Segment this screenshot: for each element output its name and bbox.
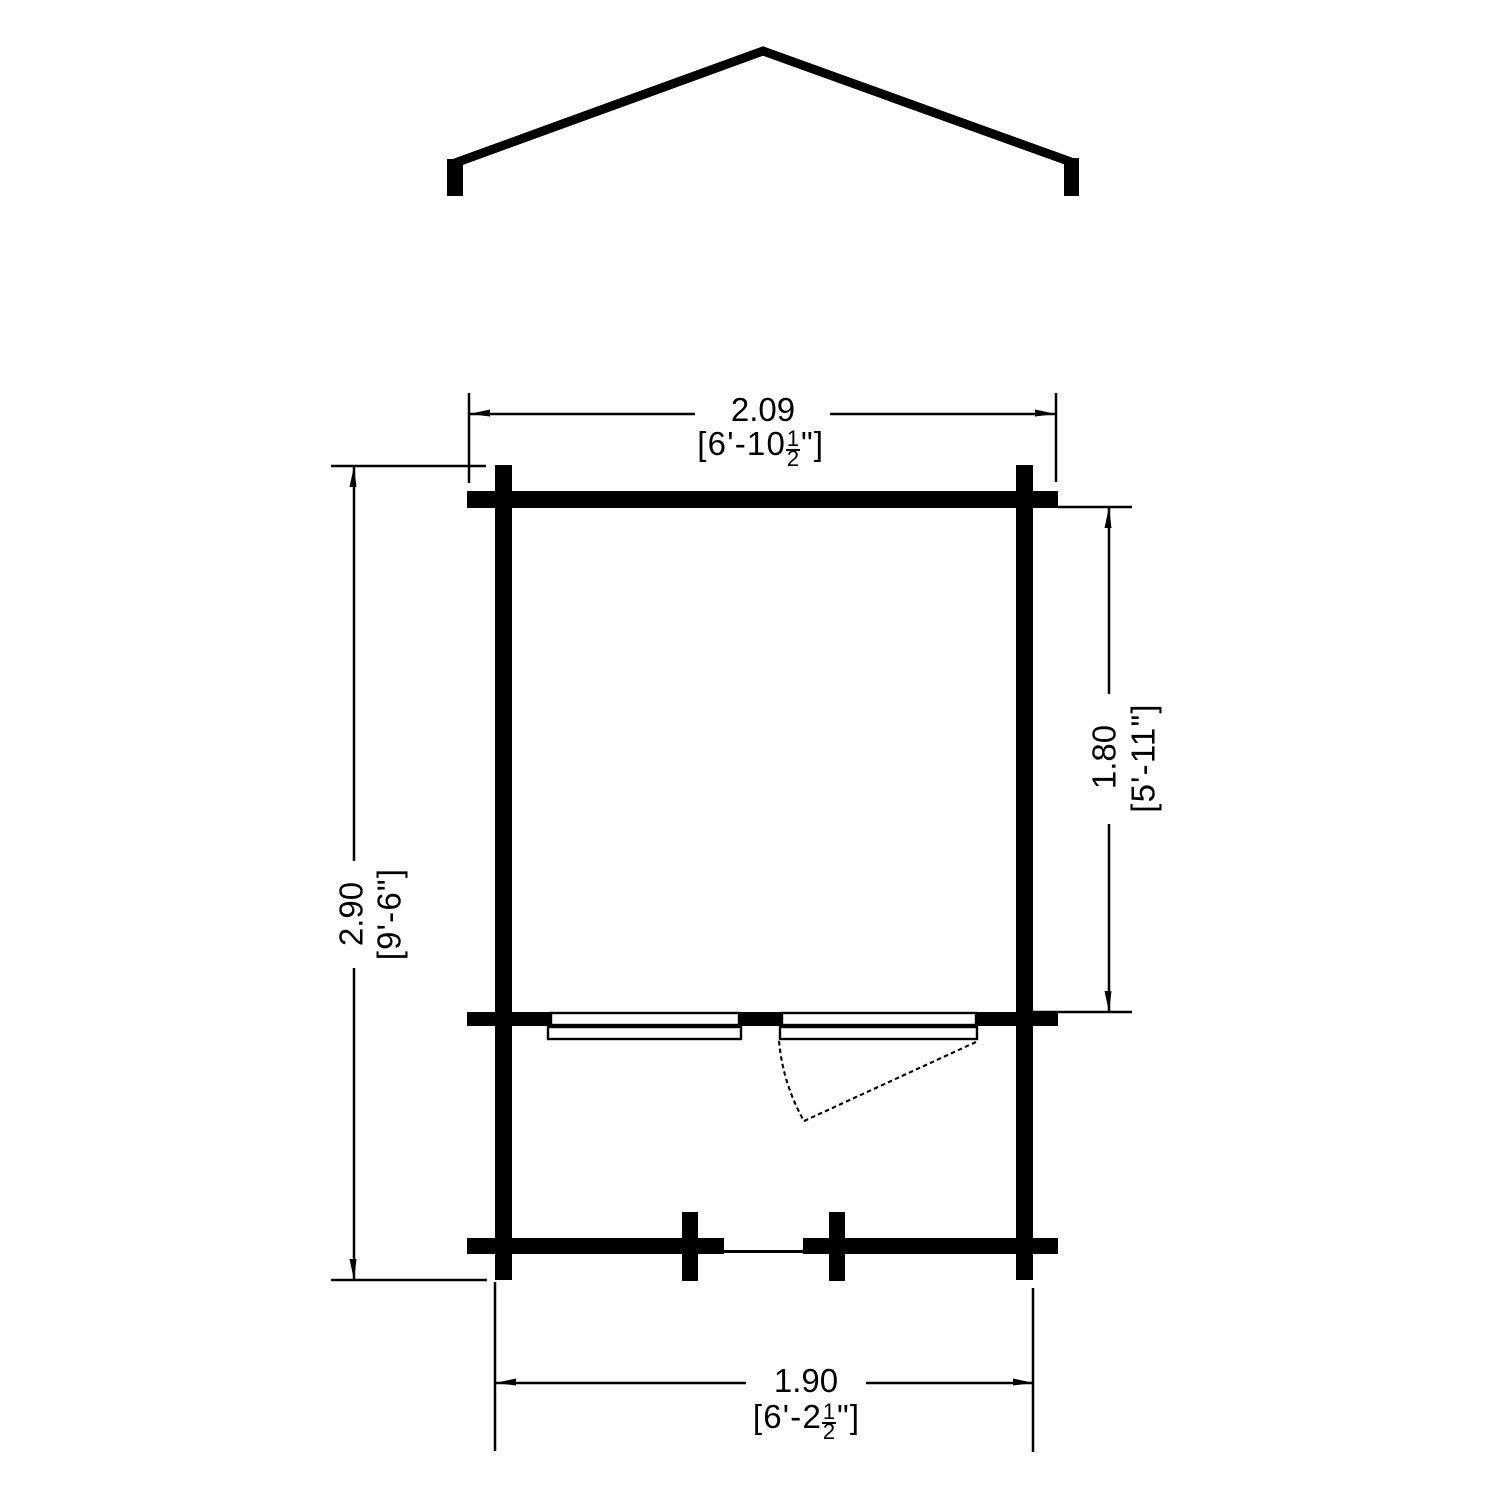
- svg-text:2.09: 2.09: [731, 391, 795, 428]
- svg-text:1.90: 1.90: [774, 1362, 838, 1399]
- svg-text:[5'-11"]: [5'-11"]: [1125, 703, 1162, 813]
- svg-text:1.80: 1.80: [1086, 725, 1123, 789]
- svg-text:[9'-6"]: [9'-6"]: [371, 868, 408, 960]
- svg-text:[6'-2: [6'-2: [753, 1398, 822, 1435]
- svg-text:"]: "]: [801, 425, 824, 462]
- svg-text:2.90: 2.90: [333, 882, 370, 946]
- svg-text:[6'-10: [6'-10: [697, 425, 786, 462]
- svg-text:"]: "]: [837, 1398, 860, 1435]
